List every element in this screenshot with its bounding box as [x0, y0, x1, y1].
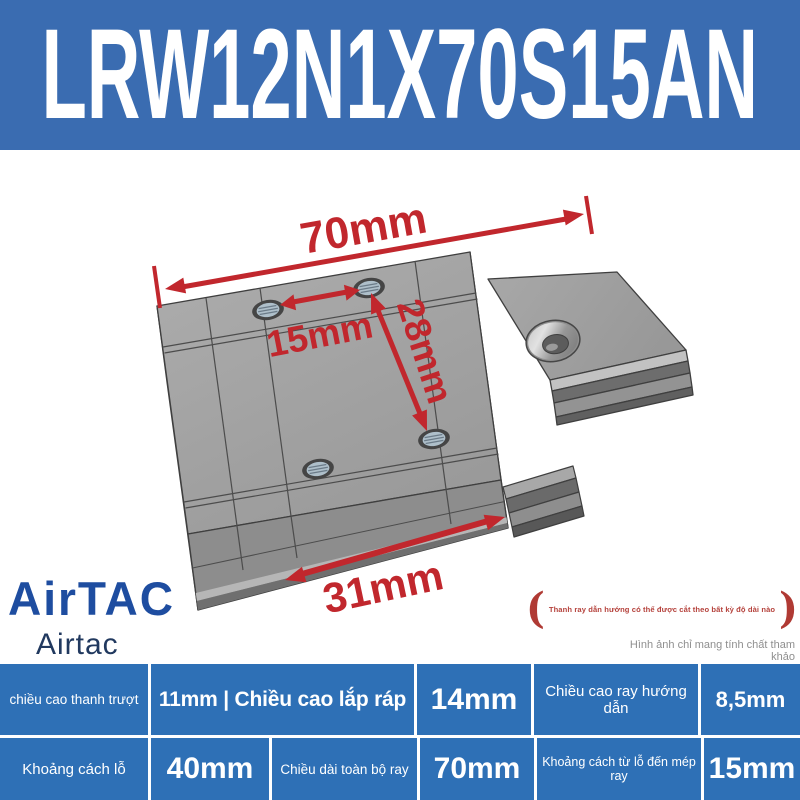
rail-lower-layers — [503, 466, 584, 537]
spec-label-hole-to-edge: Khoảng cách từ lỗ đến mép ray — [537, 738, 701, 800]
spec-label-hole-spacing: Khoảng cách lỗ — [0, 738, 148, 800]
airtac-logo: AirTAC — [8, 575, 224, 622]
brand-name: Airtac — [36, 628, 228, 662]
guide-rail-right — [488, 272, 693, 425]
spec-table-row-1: chiều cao thanh trượt 11mm | Chiều cao l… — [0, 664, 800, 735]
spec-table-row-2: Khoảng cách lỗ 40mm Chiều dài toàn bộ ra… — [0, 738, 800, 800]
spec-value-14mm: 14mm — [417, 664, 531, 735]
bracket-open: ( — [526, 588, 545, 630]
carriage-block — [157, 252, 508, 610]
rail-cut-note: ( Thanh ray dẫn hướng có thể được cắt th… — [526, 588, 798, 630]
spec-table: chiều cao thanh trượt 11mm | Chiều cao l… — [0, 664, 800, 800]
spec-value-70mm: 70mm — [420, 738, 534, 800]
reference-note: Hình ảnh chỉ mang tính chất tham khảo — [620, 639, 795, 663]
spec-label-rail-height: Chiều cao ray hướng dẫn — [534, 664, 698, 735]
spec-value-40mm: 40mm — [151, 738, 269, 800]
spec-label-rail-length: Chiều dài toàn bộ ray — [272, 738, 417, 800]
spec-value-assembly-height: 11mm | Chiều cao lắp ráp — [151, 664, 414, 735]
dim-label-70mm: 70mm — [297, 194, 431, 264]
rail-cut-text: Thanh ray dẫn hướng có thể được cắt theo… — [546, 605, 778, 614]
spec-label-slider-height: chiều cao thanh trượt — [0, 664, 148, 735]
spec-value-8-5mm: 8,5mm — [701, 664, 800, 735]
brand-block: AirTAC Airtac — [8, 575, 228, 662]
spec-value-15mm: 15mm — [704, 738, 800, 800]
bracket-close: ) — [779, 588, 798, 630]
